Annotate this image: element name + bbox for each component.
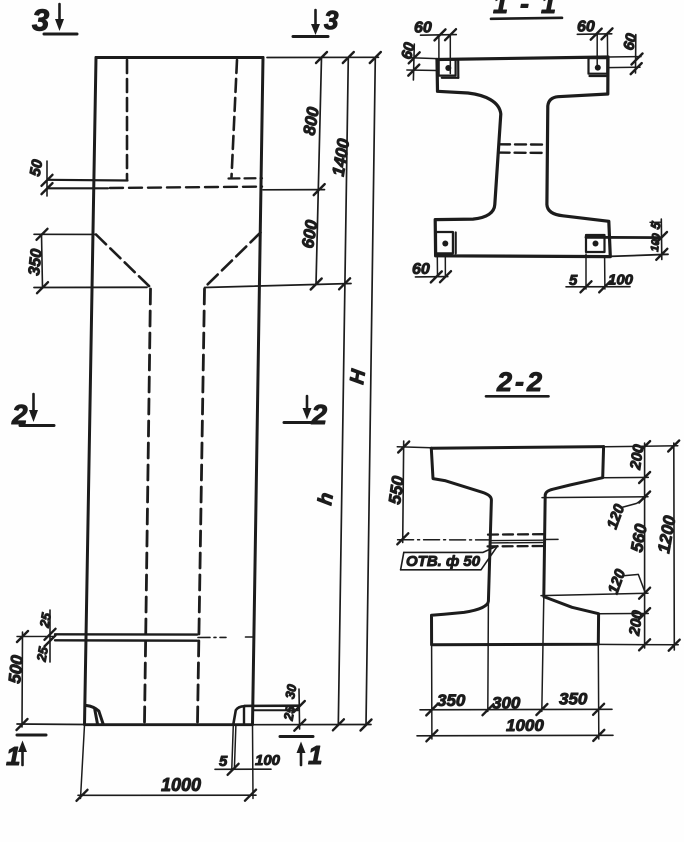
svg-text:2: 2	[311, 399, 328, 430]
svg-text:1-1: 1-1	[493, 0, 568, 19]
svg-text:1000: 1000	[161, 775, 201, 795]
svg-text:ОТВ. ф 50: ОТВ. ф 50	[406, 553, 481, 570]
svg-text:350: 350	[26, 248, 46, 276]
svg-text:350: 350	[437, 691, 466, 710]
svg-text:2-2: 2-2	[496, 367, 545, 397]
svg-text:1: 1	[308, 740, 322, 770]
svg-text:100: 100	[649, 232, 663, 252]
svg-text:1000: 1000	[506, 716, 544, 735]
svg-text:3: 3	[324, 5, 339, 35]
svg-text:550: 550	[385, 474, 408, 505]
svg-text:300: 300	[492, 694, 521, 713]
svg-text:60: 60	[577, 19, 595, 36]
svg-text:100: 100	[608, 272, 634, 289]
svg-text:350: 350	[559, 690, 588, 709]
svg-text:500: 500	[5, 654, 27, 685]
svg-text:100: 100	[255, 752, 281, 769]
svg-text:3: 3	[32, 3, 49, 38]
svg-text:5: 5	[219, 753, 228, 770]
svg-text:60: 60	[414, 20, 432, 37]
svg-text:5: 5	[569, 272, 578, 289]
svg-text:1: 1	[6, 741, 20, 771]
svg-text:60: 60	[412, 261, 430, 278]
